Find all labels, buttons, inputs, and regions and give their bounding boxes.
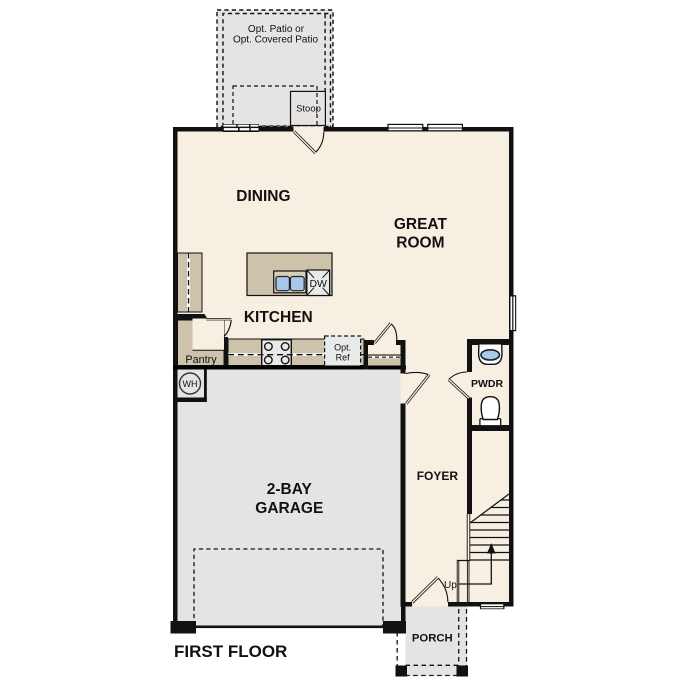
svg-text:KITCHEN: KITCHEN: [244, 309, 313, 326]
svg-text:Opt.: Opt.: [334, 343, 351, 353]
svg-text:Opt. Covered Patio: Opt. Covered Patio: [233, 35, 318, 46]
svg-text:ROOM: ROOM: [396, 235, 444, 252]
svg-text:GREAT: GREAT: [394, 216, 448, 233]
svg-text:PORCH: PORCH: [412, 632, 453, 644]
svg-text:PWDR: PWDR: [471, 378, 503, 390]
svg-text:Stoop: Stoop: [296, 104, 321, 115]
svg-text:2-BAY: 2-BAY: [267, 481, 313, 498]
svg-text:Ref: Ref: [336, 353, 351, 363]
svg-text:FOYER: FOYER: [417, 469, 459, 483]
svg-text:DINING: DINING: [236, 188, 290, 205]
svg-text:DW: DW: [309, 278, 327, 290]
svg-text:Opt. Patio or: Opt. Patio or: [248, 24, 305, 35]
svg-text:Pantry: Pantry: [185, 354, 217, 366]
svg-text:FIRST FLOOR: FIRST FLOOR: [174, 642, 287, 661]
svg-text:WH: WH: [183, 379, 198, 389]
svg-text:GARAGE: GARAGE: [255, 500, 323, 517]
